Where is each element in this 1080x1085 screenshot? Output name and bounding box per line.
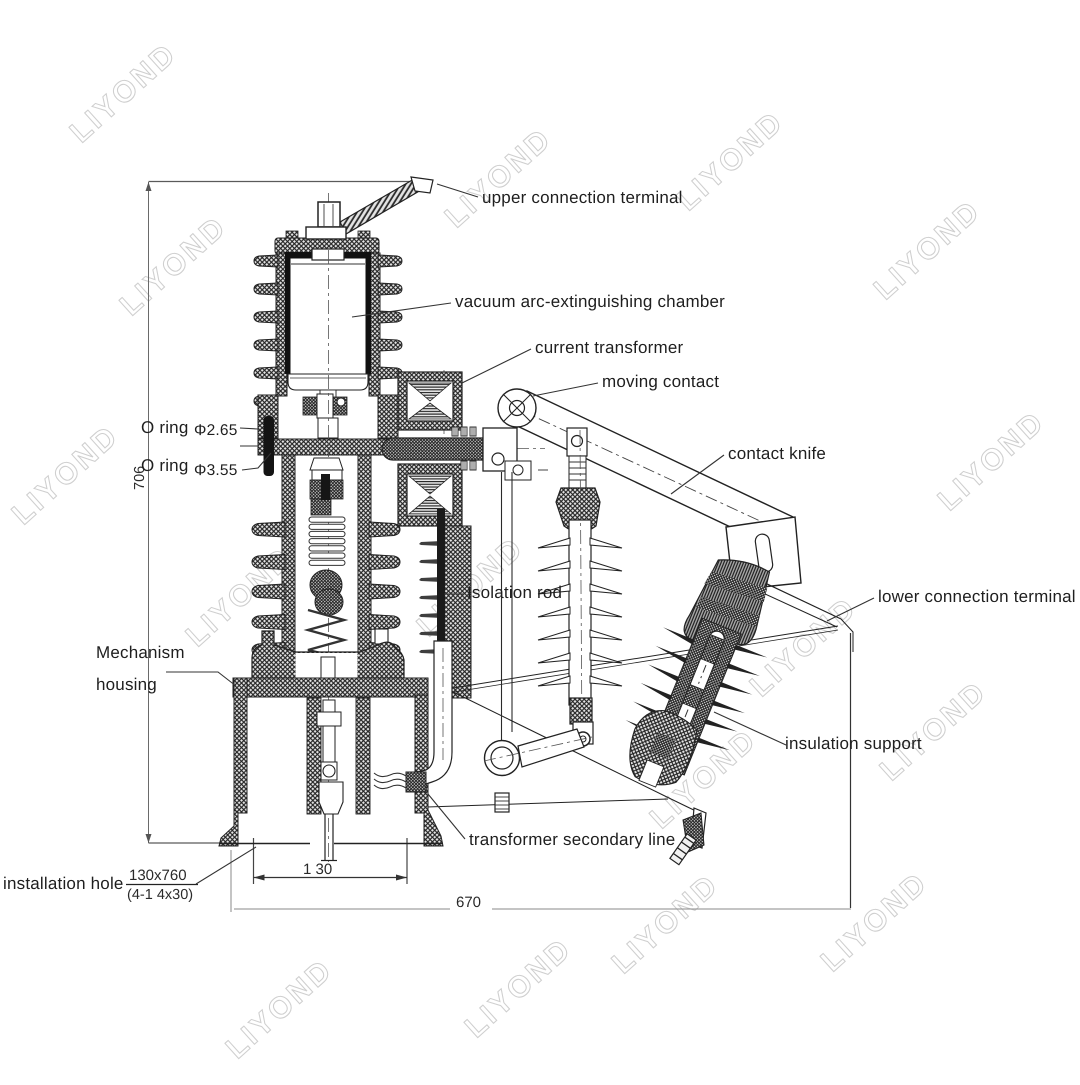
svg-text:moving contact: moving contact	[602, 372, 719, 391]
svg-text:Φ3.55: Φ3.55	[194, 462, 238, 479]
svg-text:130x760: 130x760	[129, 867, 187, 884]
svg-text:670: 670	[456, 894, 481, 911]
svg-text:O ring: O ring	[141, 456, 189, 475]
svg-text:Mechanism: Mechanism	[96, 643, 185, 662]
svg-text:installation hole: installation hole	[3, 874, 124, 893]
svg-text:vacuum arc-extinguishing chamb: vacuum arc-extinguishing chamber	[455, 292, 725, 311]
svg-text:(4-1 4x30): (4-1 4x30)	[127, 887, 193, 903]
svg-text:transformer secondary line: transformer secondary line	[469, 830, 675, 849]
svg-text:lower connection terminal: lower connection terminal	[878, 587, 1076, 606]
svg-text:Φ2.65: Φ2.65	[194, 422, 238, 439]
svg-text:Isolation rod: Isolation rod	[467, 583, 562, 602]
svg-text:insulation support: insulation support	[785, 734, 922, 753]
svg-text:current transformer: current transformer	[535, 338, 683, 357]
svg-text:housing: housing	[96, 675, 157, 694]
svg-text:1 30: 1 30	[303, 861, 332, 878]
svg-text:upper connection terminal: upper connection terminal	[482, 188, 683, 207]
svg-text:contact knife: contact knife	[728, 444, 826, 463]
svg-text:O ring: O ring	[141, 418, 189, 437]
